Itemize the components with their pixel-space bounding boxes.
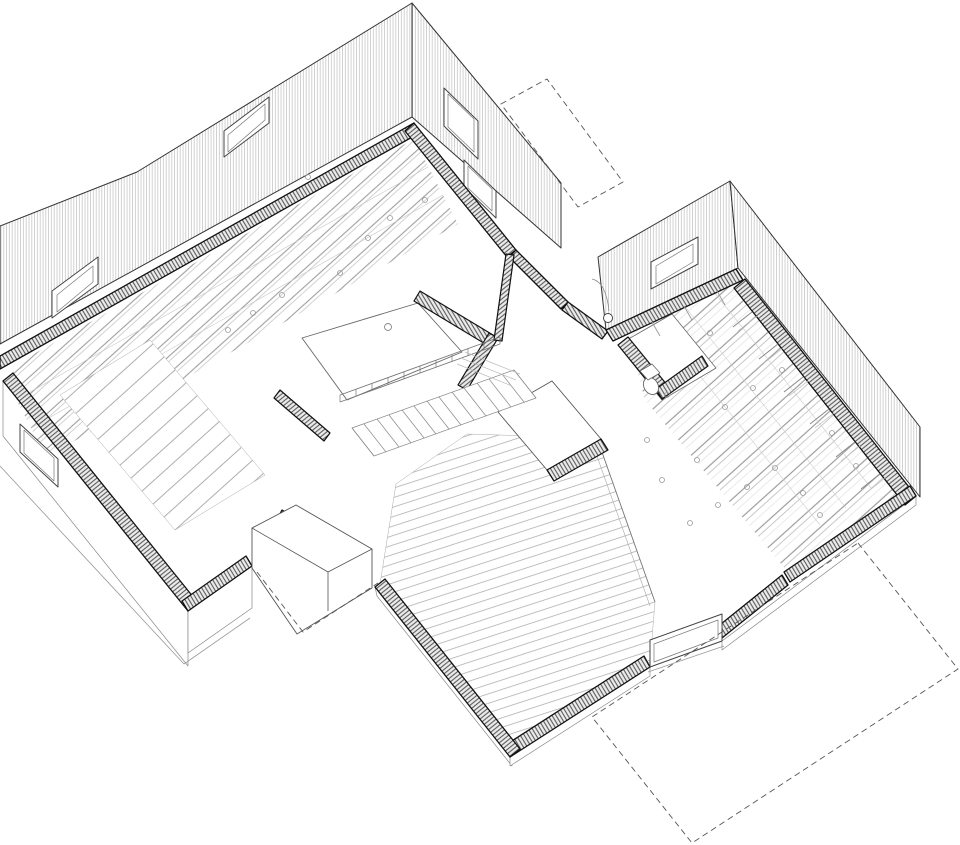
axonometric-architectural-drawing	[0, 0, 960, 845]
cut-wall-band	[494, 254, 514, 341]
bay-volume	[252, 505, 372, 634]
downlight	[716, 503, 721, 508]
ceiling-panel	[302, 303, 462, 400]
downlight	[660, 478, 665, 483]
cut-wall-band	[274, 390, 330, 441]
door-knob	[604, 314, 613, 323]
cut-wall-band	[509, 250, 568, 309]
downlight	[645, 438, 650, 443]
downlight	[306, 175, 311, 180]
drawing-shapes	[0, 3, 958, 843]
downlight	[688, 521, 693, 526]
drawing-canvas	[0, 0, 960, 845]
cut-wall-band	[562, 302, 608, 339]
